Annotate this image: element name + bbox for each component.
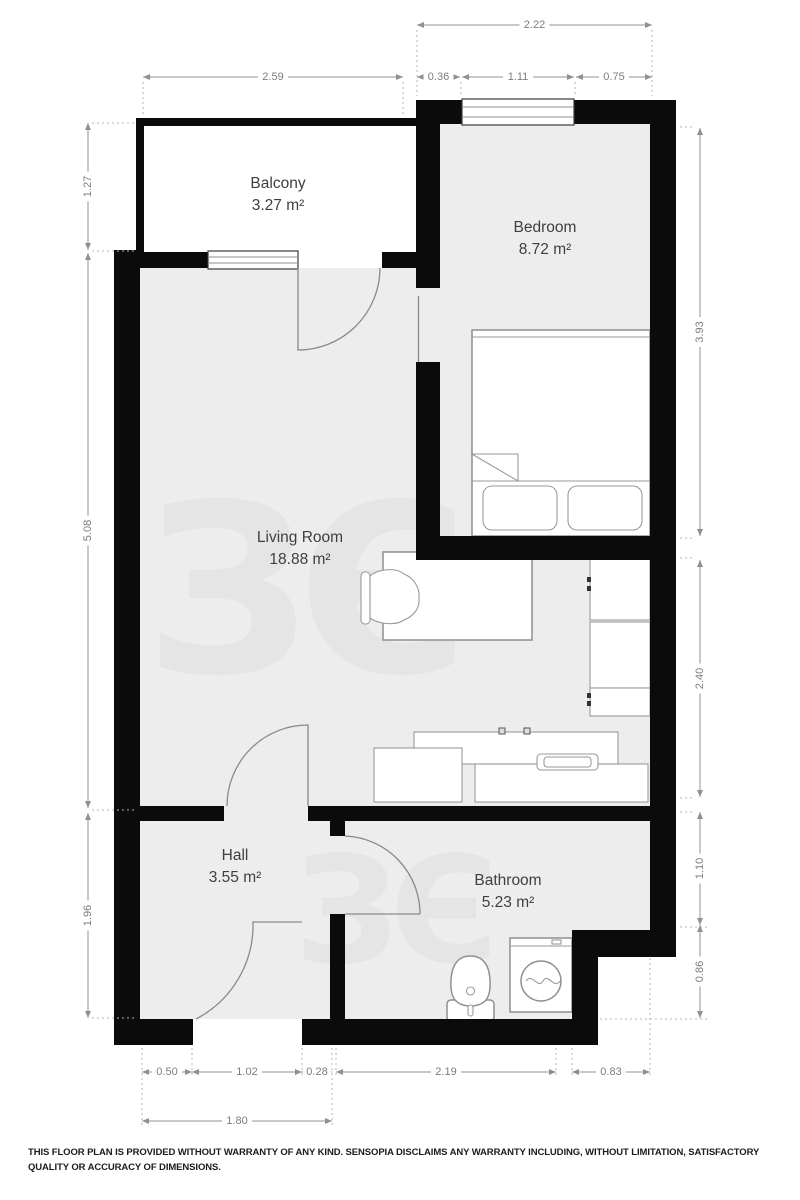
svg-text:1.02: 1.02 (236, 1066, 257, 1078)
balcony-window (208, 251, 298, 269)
svg-text:5.08: 5.08 (82, 520, 94, 541)
pillow (568, 486, 642, 530)
svg-text:Balcony: Balcony (250, 175, 305, 192)
dim-top-balcony: 2.59 (143, 71, 403, 84)
svg-text:0.86: 0.86 (694, 961, 706, 982)
dim-right-living: 2.40 (694, 560, 707, 797)
svg-text:2.19: 2.19 (435, 1066, 456, 1078)
pillow (483, 486, 557, 530)
dim-bottom-bathroom: 2.19 (336, 1066, 556, 1079)
dim-top-overall: 2.22 (417, 19, 652, 32)
svg-text:1.96: 1.96 (82, 905, 94, 926)
svg-text:1.27: 1.27 (82, 176, 94, 197)
dim-right-bedroom: 3.93 (694, 128, 707, 536)
svg-text:2.22: 2.22 (524, 19, 545, 31)
dim-bottom-entry-door: 1.02 (192, 1066, 302, 1079)
room-label-balcony: Balcony 3.27 m² (250, 175, 305, 214)
svg-text:2.59: 2.59 (262, 71, 283, 83)
floor-plan-page: ЗЄ ЗЄ (0, 0, 800, 1200)
dim-top-wall: 0.36 (417, 71, 460, 84)
svg-text:0.36: 0.36 (428, 71, 449, 83)
svg-text:3.55 m²: 3.55 m² (209, 869, 262, 886)
dim-left-hall: 1.96 (82, 813, 95, 1018)
toilet-symbol (447, 956, 494, 1021)
disclaimer-text: THIS FLOOR PLAN IS PROVIDED WITHOUT WARR… (28, 1146, 776, 1175)
bedroom-window (462, 99, 574, 125)
svg-text:5.23 m²: 5.23 m² (482, 894, 535, 911)
dim-right-step: 0.86 (694, 925, 707, 1018)
svg-text:Bedroom: Bedroom (514, 219, 577, 236)
kitchen-counter-symbols (374, 728, 648, 802)
dim-bottom-step: 0.83 (572, 1066, 650, 1079)
svg-text:1.11: 1.11 (508, 71, 529, 83)
washing-machine-symbol (510, 938, 572, 1012)
dim-bottom-overall: 1.80 (142, 1115, 332, 1128)
svg-text:1.10: 1.10 (694, 858, 706, 879)
stove-symbol (544, 757, 591, 767)
svg-text:2.40: 2.40 (694, 668, 706, 689)
svg-text:0.83: 0.83 (600, 1066, 621, 1078)
svg-text:Bathroom: Bathroom (474, 872, 541, 889)
svg-text:3.27 m²: 3.27 m² (252, 197, 305, 214)
floor-plan-canvas: ЗЄ ЗЄ (0, 0, 800, 1200)
svg-text:3.93: 3.93 (694, 321, 706, 342)
dim-left-living: 5.08 (82, 253, 95, 808)
office-chair-symbol (361, 570, 419, 624)
dim-bottom-wall-left: 0.50 (142, 1066, 192, 1079)
dim-bottom-wall-mid: 0.28 (302, 1066, 332, 1079)
dim-top-right: 0.75 (576, 71, 652, 84)
svg-text:0.50: 0.50 (156, 1066, 177, 1078)
svg-text:0.28: 0.28 (306, 1066, 327, 1078)
svg-text:Living Room: Living Room (257, 529, 343, 546)
svg-text:18.88 m²: 18.88 m² (269, 551, 330, 568)
wardrobe-cabinets (587, 552, 650, 716)
svg-text:8.72 m²: 8.72 m² (519, 241, 572, 258)
dim-right-bathroom: 1.10 (694, 812, 707, 925)
svg-text:1.80: 1.80 (226, 1115, 247, 1127)
svg-text:Hall: Hall (222, 847, 249, 864)
dim-left-balcony: 1.27 (82, 123, 95, 250)
dim-top-window: 1.11 (462, 71, 574, 84)
bed-symbol (472, 330, 650, 536)
svg-text:0.75: 0.75 (603, 71, 624, 83)
